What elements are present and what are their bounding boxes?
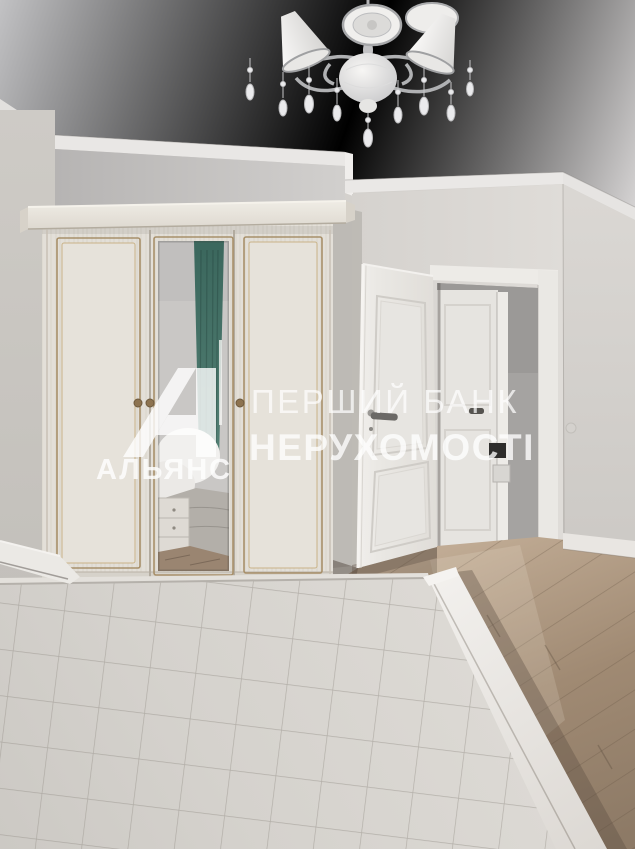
bedroom-photo: АЛЬЯНС ПЕРШИЙ БАНК НЕРУХОМОСТІ <box>0 0 635 849</box>
watermark-line1: ПЕРШИЙ БАНК <box>251 385 519 418</box>
alliance-logo-text: АЛЬЯНС <box>96 456 232 485</box>
wall-socket <box>566 423 576 433</box>
watermark-line2: НЕРУХОМОСТІ <box>249 429 535 466</box>
alliance-logo-icon <box>120 366 220 460</box>
right-wall <box>563 184 635 546</box>
photo-scene <box>0 0 635 849</box>
chandelier-body <box>339 53 397 103</box>
